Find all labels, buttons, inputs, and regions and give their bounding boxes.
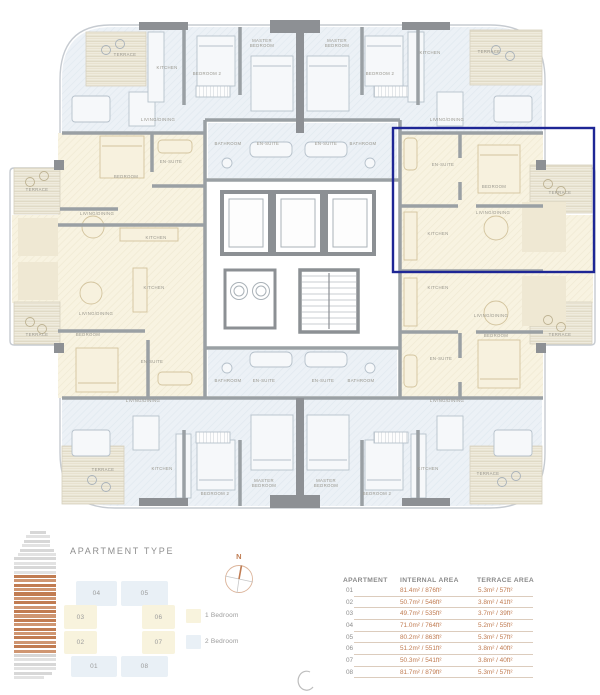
keyplan-unit-03[interactable]: 03 bbox=[64, 605, 97, 629]
table-row: 0349.7m² / 535ft²3.7m² / 39ft² bbox=[343, 610, 535, 622]
room-label: LIVING/DINING bbox=[141, 117, 176, 122]
keyplan-unit-07[interactable]: 07 bbox=[142, 631, 175, 654]
room-label: BEDROOM 2 bbox=[193, 71, 222, 76]
terrace-area-value: 3.8m² / 41ft² bbox=[478, 599, 535, 606]
room-label: KITCHEN bbox=[428, 285, 449, 290]
stack-floor bbox=[14, 672, 52, 675]
room-label: TERRACE bbox=[549, 190, 572, 195]
keyplan-unit-04[interactable]: 04 bbox=[76, 581, 117, 606]
apartment-number: 05 bbox=[343, 634, 400, 641]
apartment-number: 06 bbox=[343, 645, 400, 652]
room-label: BEDROOM 2 bbox=[201, 491, 230, 496]
stack-floor-highlighted bbox=[14, 619, 56, 622]
room-label: EN-SUITE bbox=[160, 159, 182, 164]
room-label: LIVING/DINING bbox=[476, 210, 511, 215]
room-label: EN-SUITE bbox=[315, 141, 337, 146]
room-label: EN-SUITE bbox=[432, 162, 454, 167]
room-label: LIVING/DINING bbox=[80, 211, 115, 216]
room-label: BEDROOM bbox=[114, 174, 138, 179]
stack-floor bbox=[14, 667, 56, 670]
room-label: LIVING/DINING bbox=[474, 313, 509, 318]
stack-floor-highlighted bbox=[14, 645, 56, 648]
terrace-area-value: 3.7m² / 39ft² bbox=[478, 610, 535, 617]
stack-floor-highlighted bbox=[14, 584, 56, 587]
area-table-header: APARTMENT INTERNAL AREA TERRACE AREA bbox=[343, 577, 535, 584]
apartment-number: 04 bbox=[343, 622, 400, 629]
internal-area-value: 80.2m² / 863ft² bbox=[400, 634, 478, 641]
floorplan-page: TERRACEKITCHENBEDROOM 2MASTERBEDROOMMAST… bbox=[0, 0, 600, 695]
terrace-area-value: 5.2m² / 55ft² bbox=[478, 622, 535, 629]
room-label: BEDROOM 2 bbox=[363, 491, 392, 496]
utility-room bbox=[225, 270, 275, 328]
stack-floor-highlighted bbox=[14, 601, 56, 604]
stack-floor-highlighted bbox=[14, 592, 56, 595]
internal-area-value: 81.7m² / 879ft² bbox=[400, 669, 478, 676]
internal-area-value: 81.4m² / 876ft² bbox=[400, 587, 478, 594]
stack-floor bbox=[14, 654, 56, 657]
apartment-number: 02 bbox=[343, 599, 400, 606]
room-label: TERRACE bbox=[26, 187, 49, 192]
apartment-number: 03 bbox=[343, 610, 400, 617]
room-label: LIVING/DINING bbox=[430, 398, 465, 403]
stack-floor-highlighted bbox=[14, 628, 56, 631]
stack-floor-highlighted bbox=[14, 575, 56, 578]
table-row: 0651.2m² / 551ft²3.8m² / 40ft² bbox=[343, 645, 535, 657]
terrace-area-value: 3.8m² / 40ft² bbox=[478, 645, 535, 652]
table-row: 0471.0m² / 764ft²5.2m² / 55ft² bbox=[343, 622, 535, 634]
stack-floor bbox=[22, 544, 50, 547]
table-row: 0750.3m² / 541ft²3.8m² / 40ft² bbox=[343, 657, 535, 669]
table-row: 0881.7m² / 879ft²5.3m² / 57ft² bbox=[343, 669, 535, 681]
floorplan-svg: TERRACEKITCHENBEDROOM 2MASTERBEDROOMMAST… bbox=[0, 0, 600, 528]
room-label: EN-SUITE bbox=[430, 356, 452, 361]
room-label: BATHROOM bbox=[215, 378, 242, 383]
stack-floor bbox=[14, 566, 56, 569]
stack-floor bbox=[14, 571, 56, 574]
stack-floor bbox=[14, 557, 56, 560]
compass: N bbox=[216, 550, 262, 598]
stack-floor-highlighted bbox=[14, 614, 56, 617]
terrace-area-value: 5.3m² / 57ft² bbox=[478, 634, 535, 641]
stack-floor-highlighted bbox=[14, 641, 56, 644]
stack-floor-highlighted bbox=[14, 579, 56, 582]
room-label: KITCHEN bbox=[152, 466, 173, 471]
room-label: EN-SUITE bbox=[257, 141, 279, 146]
stack-floor-highlighted bbox=[14, 606, 56, 609]
stack-floor-highlighted bbox=[14, 610, 56, 613]
room-label: KITCHEN bbox=[144, 285, 165, 290]
room-label: MASTERBEDROOM bbox=[325, 38, 349, 48]
terrace-area-value: 3.8m² / 40ft² bbox=[478, 657, 535, 664]
room-label: KITCHEN bbox=[428, 231, 449, 236]
room-label: KITCHEN bbox=[146, 235, 167, 240]
room-label: BATHROOM bbox=[350, 141, 377, 146]
room-label: MASTERBEDROOM bbox=[252, 478, 276, 488]
room-label: MASTERBEDROOM bbox=[314, 478, 338, 488]
room-label: TERRACE bbox=[92, 467, 115, 472]
stack-floor-highlighted bbox=[14, 588, 56, 591]
internal-area-value: 71.0m² / 764ft² bbox=[400, 622, 478, 629]
internal-area-value: 50.7m² / 546ft² bbox=[400, 599, 478, 606]
apartment-number: 01 bbox=[343, 587, 400, 594]
room-label: BEDROOM bbox=[76, 332, 100, 337]
internal-area-value: 51.2m² / 551ft² bbox=[400, 645, 478, 652]
room-label: LIVING/DINING bbox=[126, 398, 161, 403]
stack-floor bbox=[14, 562, 56, 565]
keyplan-unit-02[interactable]: 02 bbox=[64, 631, 97, 654]
stack-floor-highlighted bbox=[14, 597, 56, 600]
stack-floor bbox=[24, 540, 50, 543]
stack-floor bbox=[18, 553, 56, 556]
header-terrace-area: TERRACE AREA bbox=[477, 577, 535, 584]
apartment-number: 08 bbox=[343, 669, 400, 676]
stack-floor-highlighted bbox=[14, 632, 56, 635]
table-row: 0250.7m² / 546ft²3.8m² / 41ft² bbox=[343, 599, 535, 611]
stack-floor bbox=[14, 658, 56, 661]
keyplan-unit-01[interactable]: 01 bbox=[71, 656, 117, 677]
stack-floor bbox=[20, 549, 54, 552]
room-label: EN-SUITE bbox=[312, 378, 334, 383]
stack-floor bbox=[14, 663, 56, 666]
page-number-fragment bbox=[293, 666, 323, 695]
stack-floor-highlighted bbox=[14, 623, 56, 626]
two-bedroom-label: 2 Bedroom bbox=[205, 638, 239, 645]
room-label: TERRACE bbox=[26, 332, 49, 337]
room-label: EN-SUITE bbox=[141, 359, 163, 364]
room-label: KITCHEN bbox=[157, 65, 178, 70]
apartment-number: 07 bbox=[343, 657, 400, 664]
one-bedroom-swatch bbox=[186, 609, 201, 623]
one-bedroom-label: 1 Bedroom bbox=[205, 612, 239, 619]
room-label: TERRACE bbox=[549, 332, 572, 337]
room-label: LIVING/DINING bbox=[79, 311, 114, 316]
compass-north-label: N bbox=[236, 552, 242, 561]
room-label: BEDROOM bbox=[484, 333, 508, 338]
keyplan-unit-05[interactable]: 05 bbox=[121, 581, 168, 606]
stack-floor bbox=[30, 531, 46, 534]
keyplan-unit-06[interactable]: 06 bbox=[142, 605, 175, 629]
terrace-area-value: 5.3m² / 57ft² bbox=[478, 587, 535, 594]
table-row: 0181.4m² / 876ft²5.3m² / 57ft² bbox=[343, 587, 535, 599]
area-table: APARTMENT INTERNAL AREA TERRACE AREA 018… bbox=[343, 577, 535, 680]
keyplan-unit-08[interactable]: 08 bbox=[121, 656, 168, 677]
two-bedroom-swatch bbox=[186, 635, 201, 649]
terrace-area-value: 5.3m² / 57ft² bbox=[478, 669, 535, 676]
room-label: TERRACE bbox=[477, 471, 500, 476]
header-apartment: APARTMENT bbox=[343, 577, 400, 584]
room-label: EN-SUITE bbox=[253, 378, 275, 383]
room-label: MASTERBEDROOM bbox=[250, 38, 274, 48]
header-internal-area: INTERNAL AREA bbox=[400, 577, 477, 584]
stack-floor-highlighted bbox=[14, 636, 56, 639]
room-label: BATHROOM bbox=[348, 378, 375, 383]
room-label: KITCHEN bbox=[418, 466, 439, 471]
room-label: BATHROOM bbox=[215, 141, 242, 146]
room-label: TERRACE bbox=[478, 49, 501, 54]
room-label: BEDROOM 2 bbox=[366, 71, 395, 76]
room-label: BEDROOM bbox=[482, 184, 506, 189]
room-label: KITCHEN bbox=[420, 50, 441, 55]
legend-title: APARTMENT TYPE bbox=[70, 546, 174, 556]
stack-floor-highlighted bbox=[14, 650, 56, 653]
internal-area-value: 49.7m² / 535ft² bbox=[400, 610, 478, 617]
stack-floor bbox=[14, 676, 44, 679]
room-label: LIVING/DINING bbox=[430, 117, 465, 122]
table-row: 0580.2m² / 863ft²5.3m² / 57ft² bbox=[343, 634, 535, 646]
room-label: TERRACE bbox=[114, 52, 137, 57]
internal-area-value: 50.3m² / 541ft² bbox=[400, 657, 478, 664]
stack-floor bbox=[26, 535, 50, 538]
